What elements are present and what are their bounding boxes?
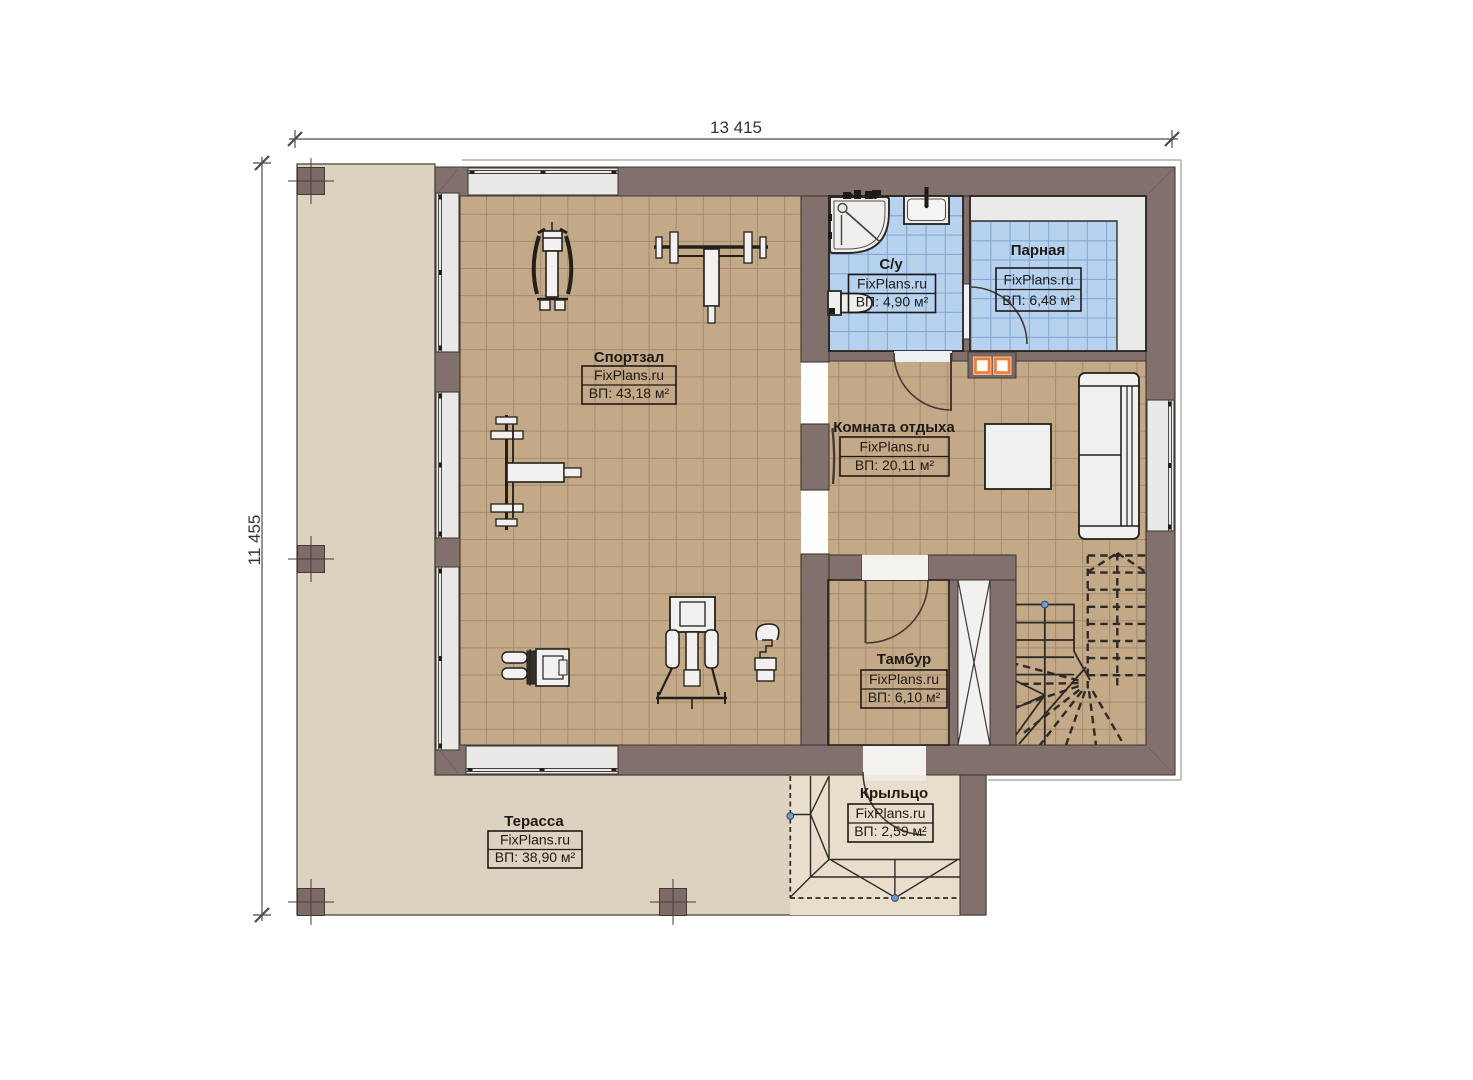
svg-text:FixPlans.ru: FixPlans.ru: [594, 367, 664, 383]
svg-text:ВП: 4,90 м²: ВП: 4,90 м²: [856, 294, 929, 310]
svg-text:FixPlans.ru: FixPlans.ru: [1003, 272, 1073, 288]
svg-text:Комната отдыха: Комната отдыха: [833, 419, 955, 436]
svg-text:13 415: 13 415: [710, 118, 762, 137]
svg-text:FixPlans.ru: FixPlans.ru: [859, 439, 929, 455]
svg-text:Спортзал: Спортзал: [594, 349, 665, 366]
svg-text:Тамбур: Тамбур: [877, 651, 931, 668]
svg-text:ВП: 2,59 м²: ВП: 2,59 м²: [854, 823, 927, 839]
svg-text:ВП: 43,18 м²: ВП: 43,18 м²: [589, 385, 670, 401]
svg-text:FixPlans.ru: FixPlans.ru: [500, 832, 570, 848]
svg-text:ВП: 38,90 м²: ВП: 38,90 м²: [495, 849, 576, 865]
svg-text:FixPlans.ru: FixPlans.ru: [855, 805, 925, 821]
svg-text:Крыльцо: Крыльцо: [860, 785, 928, 802]
svg-text:Терасса: Терасса: [504, 813, 564, 830]
svg-text:ВП: 20,11 м²: ВП: 20,11 м²: [855, 457, 935, 473]
svg-text:11 455: 11 455: [245, 515, 264, 566]
svg-text:FixPlans.ru: FixPlans.ru: [857, 276, 927, 292]
svg-text:FixPlans.ru: FixPlans.ru: [869, 671, 939, 687]
svg-text:ВП: 6,48 м²: ВП: 6,48 м²: [1002, 292, 1075, 308]
svg-text:С/у: С/у: [879, 256, 903, 273]
svg-text:Парная: Парная: [1011, 242, 1065, 259]
svg-text:ВП: 6,10 м²: ВП: 6,10 м²: [868, 689, 941, 705]
